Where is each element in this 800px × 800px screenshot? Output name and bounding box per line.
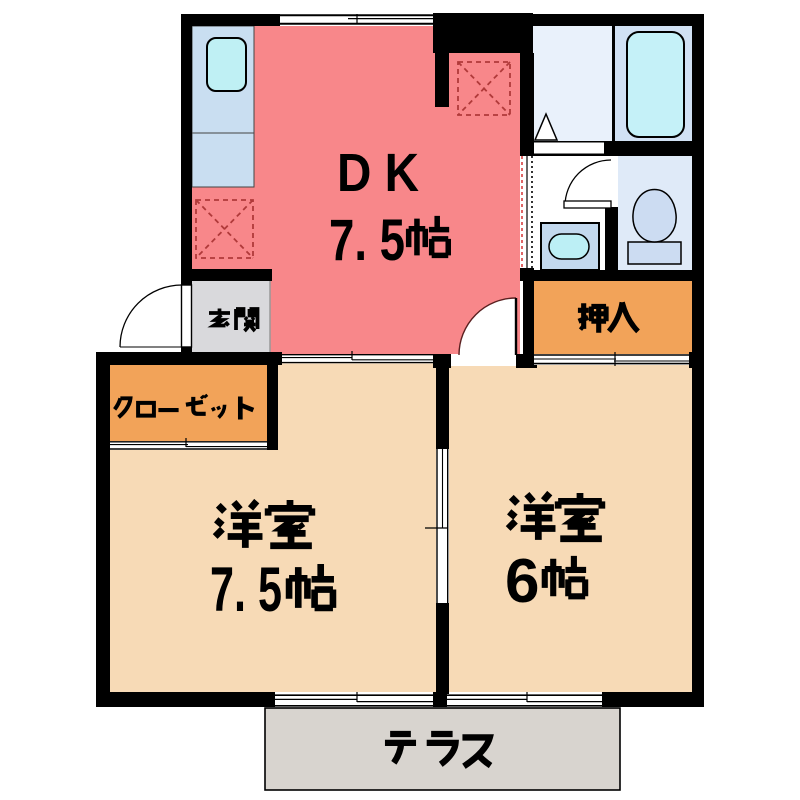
svg-text:D K: D K <box>337 143 419 203</box>
svg-text:7. 5: 7. 5 <box>329 208 405 273</box>
svg-text:6: 6 <box>505 547 539 616</box>
svg-text:7. 5: 7. 5 <box>210 555 282 625</box>
